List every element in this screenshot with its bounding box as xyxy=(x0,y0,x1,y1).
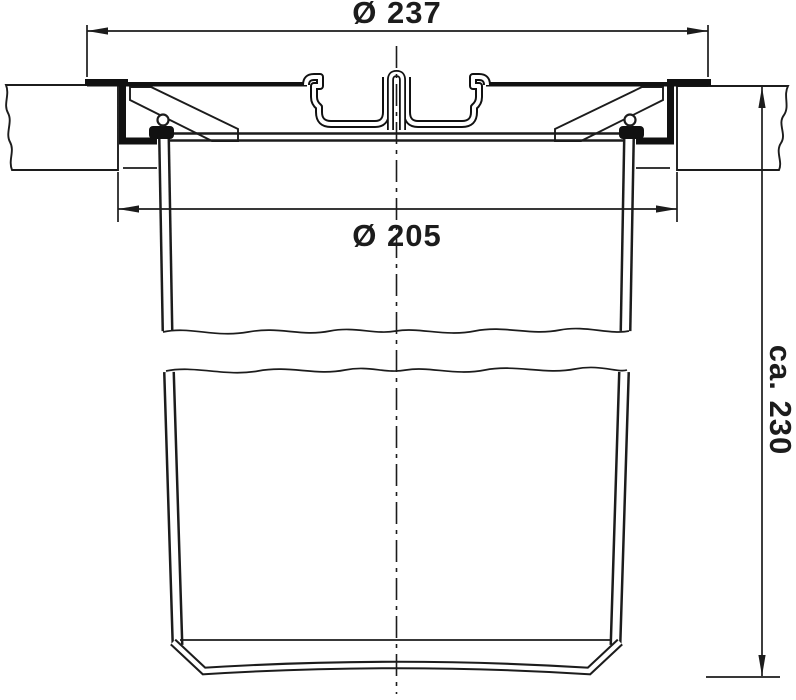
countertop-right xyxy=(677,86,788,170)
seal-left xyxy=(149,115,174,140)
dimension-inner-diameter: Ø 205 xyxy=(118,172,677,253)
technical-drawing-page: Ø 237 Ø 205 ca. 230 xyxy=(0,0,796,700)
seal-right xyxy=(619,115,644,140)
arrowhead-left xyxy=(87,27,108,34)
lid-surface-right xyxy=(486,82,708,87)
height-label: ca. 230 xyxy=(763,345,796,455)
arrowhead-left xyxy=(118,205,139,212)
technical-drawing-canvas: Ø 237 Ø 205 ca. 230 xyxy=(0,0,796,700)
arrowhead-right xyxy=(656,205,677,212)
dimension-outer-diameter: Ø 237 xyxy=(87,0,708,77)
arrowhead-bottom xyxy=(758,655,765,676)
countertop-right-section xyxy=(677,86,788,170)
seal-block-left xyxy=(149,126,174,139)
seal-block-right xyxy=(619,126,644,139)
arrowhead-right xyxy=(687,27,708,34)
countertop-left xyxy=(6,85,118,170)
lid-top xyxy=(87,82,708,87)
countertop-left-section xyxy=(6,85,118,170)
seal-bead-right xyxy=(625,115,636,126)
inner-diameter-label: Ø 205 xyxy=(352,218,441,253)
dimension-height: ca. 230 xyxy=(706,87,796,677)
outer-diameter-label: Ø 237 xyxy=(352,0,441,30)
arrowhead-top xyxy=(758,87,765,108)
lid-surface-left xyxy=(87,82,307,87)
seal-bead-left xyxy=(158,115,169,126)
